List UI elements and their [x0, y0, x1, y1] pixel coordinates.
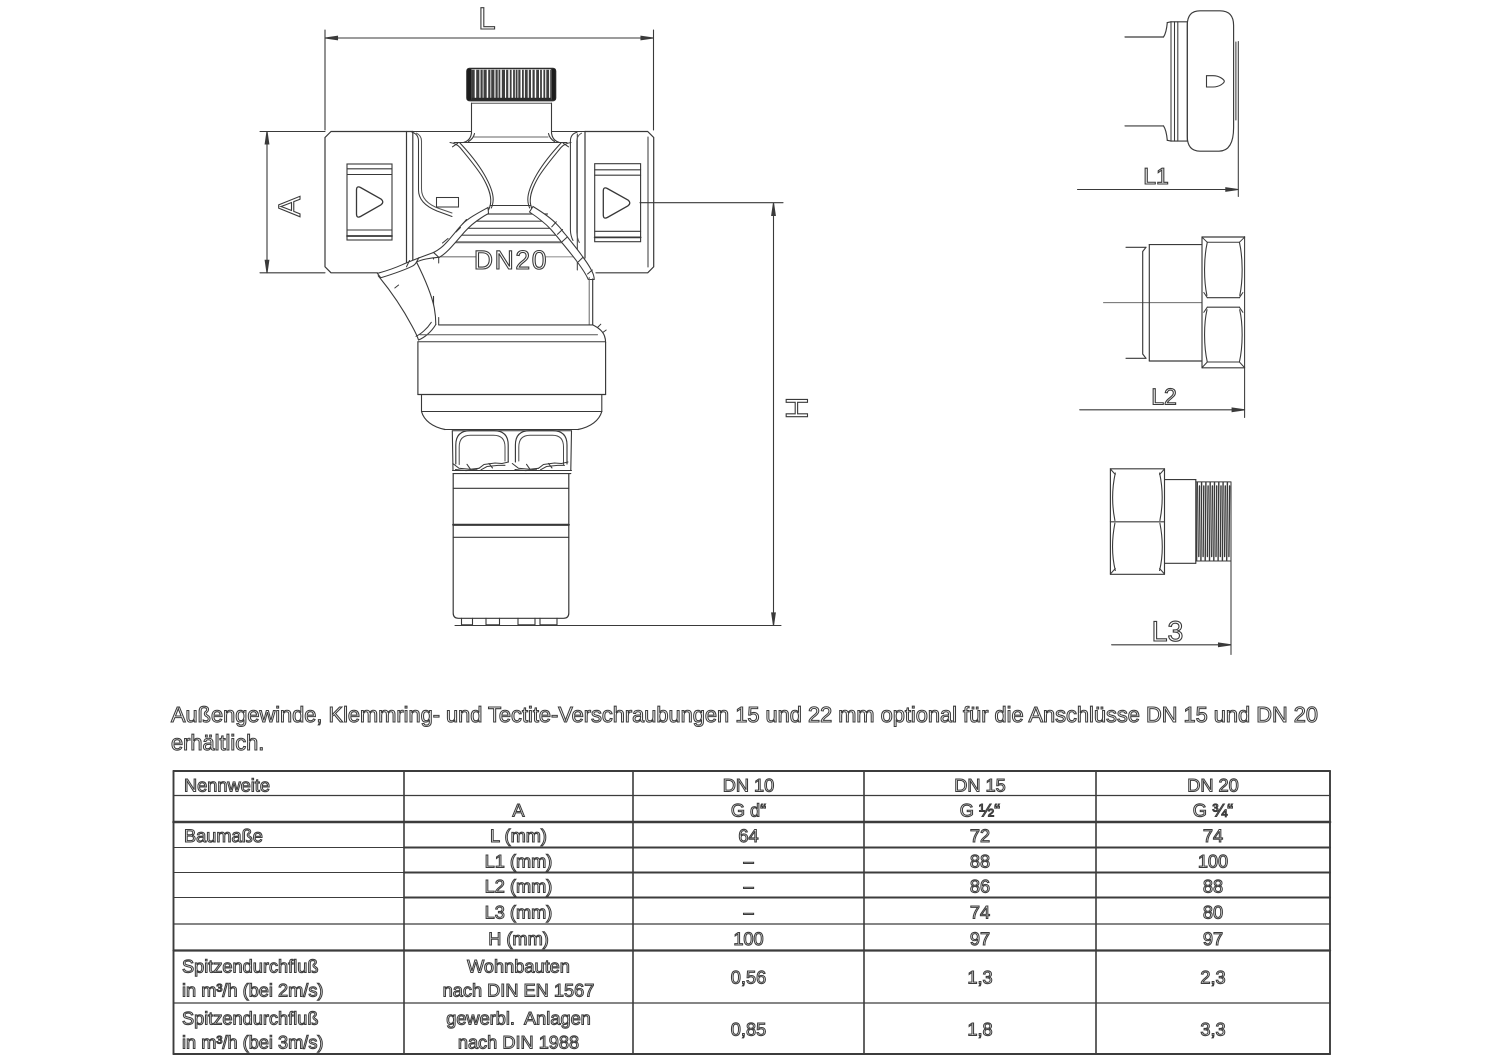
- svg-text:Spitzendurchfluß: Spitzendurchfluß: [182, 957, 318, 977]
- svg-text:DN 15: DN 15: [954, 776, 1006, 796]
- svg-text:80: 80: [1203, 903, 1223, 923]
- svg-text:88: 88: [970, 851, 990, 871]
- svg-text:erhältlich.: erhältlich.: [171, 730, 264, 755]
- svg-text:1,8: 1,8: [967, 1020, 992, 1040]
- svg-text:74: 74: [1203, 826, 1223, 846]
- svg-text:DN20: DN20: [474, 245, 548, 275]
- svg-text:A: A: [272, 196, 307, 217]
- svg-text:3,3: 3,3: [1200, 1020, 1225, 1040]
- svg-text:nach DIN EN 1567: nach DIN EN 1567: [443, 981, 595, 1001]
- svg-text:0,56: 0,56: [731, 968, 766, 988]
- svg-text:–: –: [743, 903, 754, 923]
- svg-text:G ¾“: G ¾“: [1193, 801, 1233, 821]
- svg-text:64: 64: [738, 826, 758, 846]
- svg-text:100: 100: [1198, 851, 1228, 871]
- svg-text:in m³/h (bei 2m/s): in m³/h (bei 2m/s): [182, 981, 324, 1001]
- svg-text:74: 74: [970, 903, 990, 923]
- svg-text:H: H: [780, 397, 815, 419]
- svg-text:L3: L3: [1152, 616, 1184, 648]
- svg-text:Baumaße: Baumaße: [184, 826, 263, 846]
- svg-text:97: 97: [1203, 929, 1223, 949]
- svg-text:A: A: [512, 801, 525, 821]
- svg-text:72: 72: [970, 826, 990, 846]
- svg-text:88: 88: [1203, 877, 1223, 897]
- svg-text:G ½“: G ½“: [960, 801, 1000, 821]
- svg-text:gewerbl. Anlagen: gewerbl. Anlagen: [446, 1009, 591, 1029]
- svg-text:86: 86: [970, 877, 990, 897]
- svg-text:L1: L1: [1143, 163, 1169, 189]
- svg-text:G d“: G d“: [731, 801, 766, 821]
- svg-text:L2 (mm): L2 (mm): [485, 877, 553, 897]
- svg-text:Spitzendurchfluß: Spitzendurchfluß: [182, 1009, 318, 1029]
- svg-text:nach DIN 1988: nach DIN 1988: [458, 1033, 579, 1053]
- svg-text:Außengewinde, Klemmring- und T: Außengewinde, Klemmring- und Tectite-Ver…: [171, 702, 1318, 727]
- svg-text:2,3: 2,3: [1200, 968, 1225, 988]
- svg-text:L (mm): L (mm): [490, 826, 547, 846]
- svg-text:L1 (mm): L1 (mm): [485, 851, 553, 871]
- svg-text:97: 97: [970, 929, 990, 949]
- svg-text:100: 100: [733, 929, 763, 949]
- svg-text:–: –: [743, 851, 754, 871]
- svg-text:L2: L2: [1151, 384, 1177, 410]
- svg-text:0,85: 0,85: [731, 1020, 766, 1040]
- svg-text:DN 10: DN 10: [723, 776, 775, 796]
- svg-text:Nennweite: Nennweite: [184, 776, 270, 796]
- svg-text:in m³/h (bei 3m/s): in m³/h (bei 3m/s): [182, 1033, 324, 1053]
- svg-text:DN 20: DN 20: [1187, 776, 1239, 796]
- svg-text:1,3: 1,3: [967, 968, 992, 988]
- svg-text:–: –: [743, 877, 754, 897]
- svg-text:L: L: [478, 1, 495, 36]
- svg-text:H (mm): H (mm): [488, 929, 549, 949]
- svg-text:Wohnbauten: Wohnbauten: [467, 957, 570, 977]
- svg-text:L3 (mm): L3 (mm): [485, 903, 553, 923]
